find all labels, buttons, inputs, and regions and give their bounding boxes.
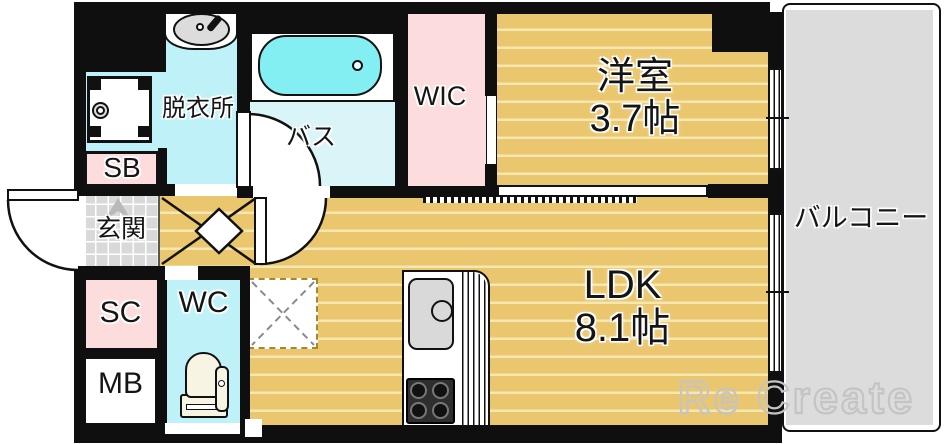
- room-label-shoe-box: SB: [86, 153, 158, 182]
- bath-door-leaf: [237, 112, 250, 187]
- floor-plan: 脱衣所 バス WIC 洋室 3.7帖 LDK 8.1帖 バルコニー 玄関 SB …: [0, 0, 947, 444]
- ldk-door-leaf: [255, 198, 266, 264]
- room-label-bath: バス: [276, 124, 346, 150]
- room-label-ldk: LDK: [530, 264, 715, 306]
- room-label-wc: WC: [167, 287, 240, 319]
- room-label-meter-box: MB: [84, 368, 157, 400]
- hall-diamond-mark: [196, 209, 242, 253]
- room-label-wic: WIC: [404, 82, 476, 110]
- room-label-entrance: 玄関: [86, 216, 156, 242]
- room-label-dressing: 脱衣所: [152, 96, 244, 121]
- room-label-balcony: バルコニー: [786, 204, 936, 232]
- room-size-western: 3.7帖: [540, 100, 730, 140]
- washbasin-faucet: [206, 14, 223, 32]
- room-size-ldk: 8.1帖: [530, 307, 715, 349]
- room-label-shoe-closet: SC: [84, 297, 157, 329]
- watermark: Re Create: [678, 372, 943, 424]
- entrance-door-leaf: [8, 190, 78, 200]
- room-label-western: 洋室: [540, 58, 730, 98]
